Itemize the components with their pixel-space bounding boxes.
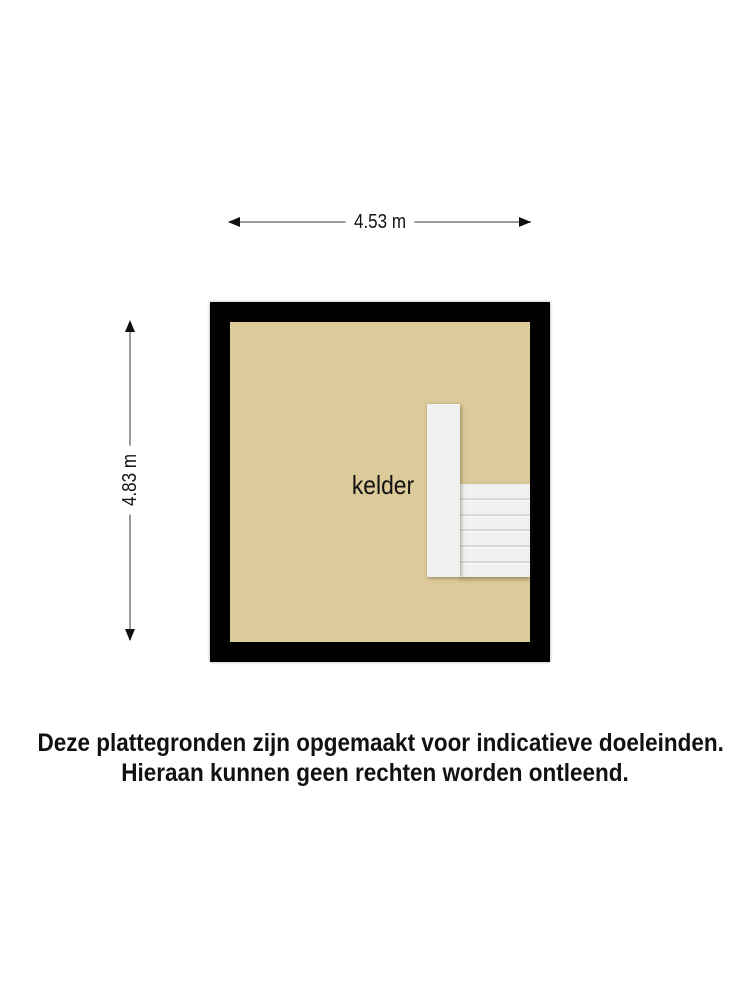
- stair-tread: [460, 545, 530, 561]
- disclaimer-line-1: Deze plattegronden zijn opgemaakt voor i…: [38, 728, 713, 758]
- stair-side-wall: [427, 404, 460, 577]
- stair-tread: [460, 514, 530, 530]
- arrow-right-icon: [519, 217, 531, 227]
- dimension-width-label: 4.53 m: [346, 210, 415, 234]
- dimension-height-label: 4.83 m: [118, 446, 142, 515]
- floorplan-walls: kelder: [210, 302, 550, 662]
- arrow-left-icon: [228, 217, 240, 227]
- room-kelder: kelder: [230, 322, 530, 642]
- stair-tread: [460, 561, 530, 577]
- arrow-down-icon: [125, 629, 135, 641]
- disclaimer-line-2: Hieraan kunnen geen rechten worden ontle…: [38, 758, 713, 788]
- stair-tread: [460, 498, 530, 514]
- room-label: kelder: [352, 471, 414, 499]
- staircase: [460, 484, 530, 577]
- floorplan-page: 4.53 m 4.83 m kelder Deze plattegronden …: [0, 0, 750, 1000]
- stair-tread: [460, 484, 530, 498]
- stair-tread: [460, 529, 530, 545]
- disclaimer: Deze plattegronden zijn opgemaakt voor i…: [0, 728, 750, 788]
- arrow-up-icon: [125, 320, 135, 332]
